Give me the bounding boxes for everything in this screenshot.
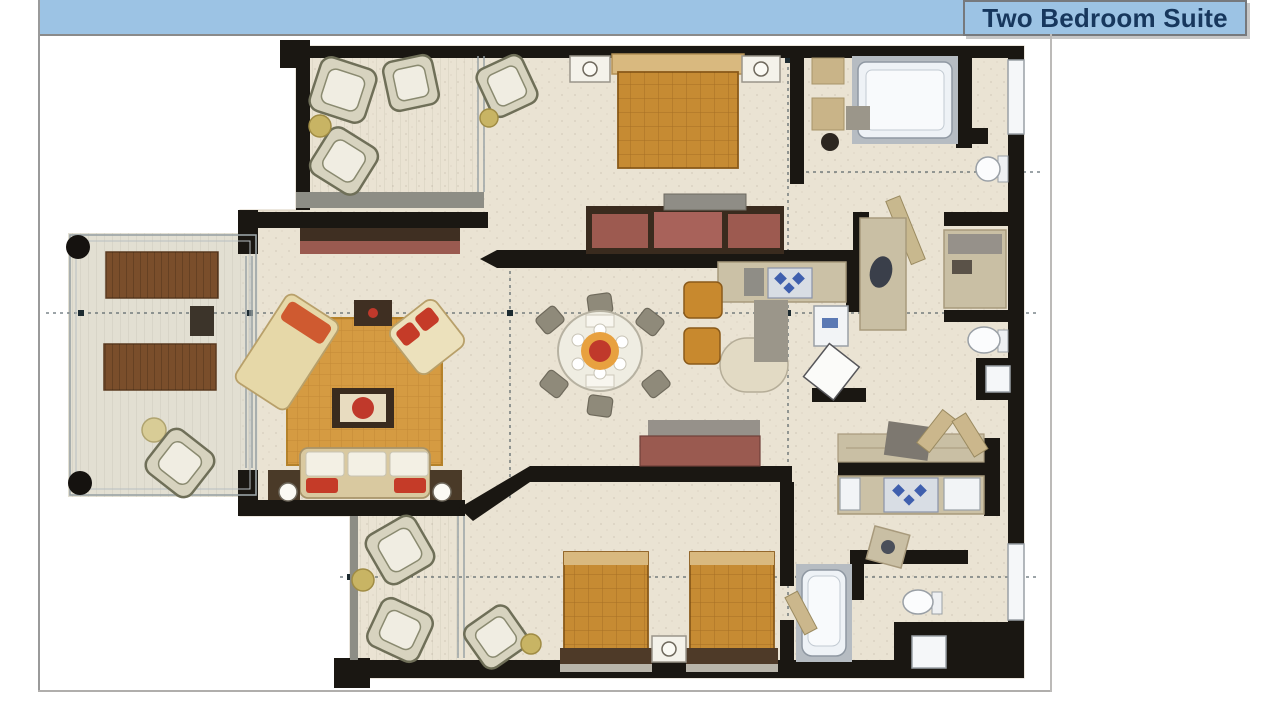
floor-plan <box>0 0 1280 720</box>
sofa <box>300 448 430 498</box>
console2 <box>640 436 760 466</box>
headboard <box>686 648 778 664</box>
tv <box>664 194 746 210</box>
sink <box>944 478 980 510</box>
console2-top <box>648 420 760 436</box>
towel-shelf <box>812 98 844 130</box>
post <box>68 471 92 495</box>
lamp <box>279 483 297 501</box>
appliance <box>840 478 860 510</box>
bench <box>846 106 870 130</box>
kitchenette-lower <box>838 476 984 514</box>
headboard <box>612 54 744 74</box>
nightstand <box>570 56 610 82</box>
nightstand <box>652 636 686 662</box>
end-table <box>430 470 462 501</box>
nightstand <box>742 56 780 82</box>
wicker-chair <box>381 53 440 112</box>
towel-shelf <box>812 58 844 84</box>
twin-bed <box>686 552 778 664</box>
window-strip <box>560 663 652 672</box>
console-front <box>300 241 460 254</box>
window-bottom-right <box>912 636 946 668</box>
twin-bed <box>560 552 652 664</box>
headboard <box>560 648 652 664</box>
lounge-chair <box>106 252 218 298</box>
window-strip <box>686 663 778 672</box>
console-top <box>300 228 460 241</box>
round-table <box>480 109 498 127</box>
round-table <box>352 569 374 591</box>
appliance <box>744 268 764 296</box>
round-table <box>521 634 541 654</box>
stove <box>884 478 938 512</box>
vanity <box>860 218 906 330</box>
dining-table <box>558 311 642 391</box>
toilet <box>968 327 1008 353</box>
window-mid-right <box>986 366 1010 392</box>
side-table <box>354 300 392 326</box>
toilet <box>976 156 1008 182</box>
king-bed <box>612 54 744 168</box>
window-right-bottom <box>1008 544 1024 620</box>
round-table <box>309 115 331 137</box>
coffee-table <box>332 388 394 428</box>
toilet <box>903 590 942 614</box>
lamp <box>433 483 451 501</box>
fridge <box>814 306 848 346</box>
lounge-chair <box>104 344 216 390</box>
end-table <box>268 470 300 501</box>
entry-foyer <box>300 228 460 254</box>
stove <box>768 268 812 298</box>
closet <box>944 230 1006 308</box>
window-right-top <box>1008 60 1024 134</box>
post <box>66 235 90 259</box>
side-table <box>190 306 214 336</box>
stool <box>821 133 839 151</box>
shower <box>852 56 958 144</box>
